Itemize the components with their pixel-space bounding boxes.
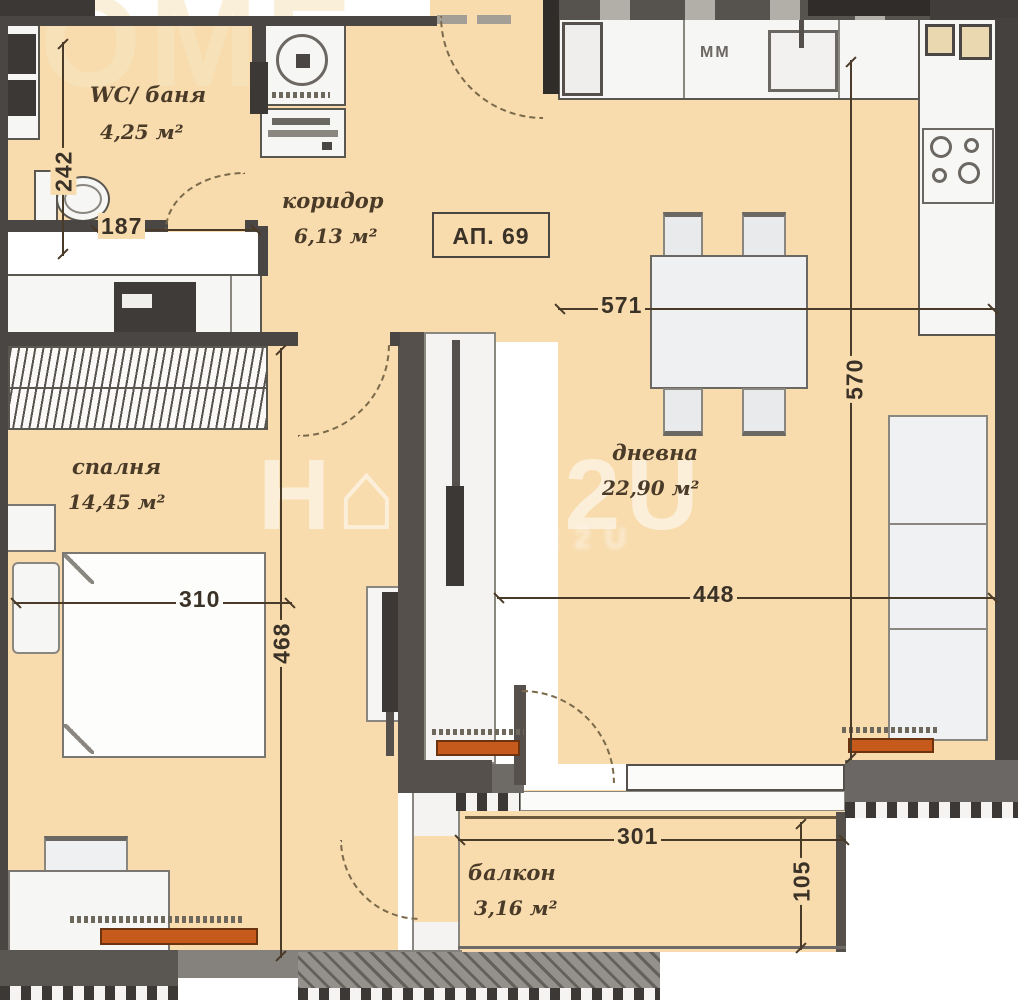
right-insulation-band (845, 760, 1018, 802)
washbasin-drain (322, 142, 332, 150)
washbasin-faucet (272, 118, 330, 125)
nightstand-icon (6, 504, 56, 552)
wall-wc-top (0, 16, 352, 26)
sliding-door-panel (446, 486, 464, 586)
hall-cabinet-slit (122, 294, 152, 308)
room-area-living: 22,90 м² (602, 476, 699, 500)
dimension-label-242: 242 (50, 148, 76, 195)
wall-wc-right-block (250, 62, 268, 114)
wardrobe-divider (10, 387, 266, 389)
bed-fold-mark (64, 554, 94, 584)
washing-machine-drum-icon (6, 34, 36, 74)
dimension-label-187: 187 (98, 213, 145, 239)
dimension-line-448 (497, 597, 995, 599)
room-name-bedroom: спалня (72, 454, 161, 479)
burner-icon (932, 168, 947, 183)
balcony-door-gap (414, 836, 458, 922)
dining-chair-icon (663, 212, 703, 258)
threshold-checker (456, 793, 520, 811)
right-checker (845, 802, 1018, 818)
balcony-window-band (626, 764, 845, 791)
dimension-label-468: 468 (268, 620, 294, 667)
dimension-label-301: 301 (614, 823, 661, 849)
shower-drain-center (296, 54, 310, 68)
bottom-left-checker (0, 986, 178, 1000)
room-area-bedroom: 14,45 м² (68, 490, 165, 514)
sofa-divider (890, 523, 986, 525)
bed-fold-mark (64, 724, 94, 754)
microwave-label: MM (700, 44, 731, 62)
dimension-label-570: 570 (841, 356, 867, 403)
counter-divider (838, 20, 840, 98)
wall-bedroom-top (8, 332, 298, 346)
bottom-checker (298, 988, 660, 1000)
wall-living-bottom (398, 760, 492, 793)
sliding-door-rail (452, 340, 460, 490)
wall-bedroom-top-stub (390, 332, 400, 346)
sofa-icon (888, 415, 988, 741)
entrance-door-leaf (543, 0, 559, 94)
balcony-right-wall (836, 812, 846, 952)
radiator-microtext (432, 729, 524, 735)
radiator-microtext (70, 916, 245, 923)
bottom-insulation-band (298, 952, 660, 990)
dimension-label-105: 105 (788, 858, 814, 905)
burner-icon (958, 162, 980, 184)
balcony-slab-edge (465, 816, 845, 819)
room-name-living: дневна (612, 440, 698, 465)
dining-chair-icon (663, 388, 703, 436)
room-area-wc: 4,25 м² (100, 120, 183, 144)
sofa-divider (890, 628, 986, 630)
shower-microtext (272, 92, 330, 98)
room-name-balcony: балкон (468, 860, 556, 885)
dimension-line-570 (850, 60, 852, 760)
radiator-icon (436, 740, 520, 756)
kitchen-counter (558, 18, 920, 100)
washing-machine-drum-icon (6, 80, 36, 116)
radiator-microtext (842, 727, 937, 733)
radiator-icon (848, 738, 934, 753)
floor-plan: H⌂ME2U HOME2U OME MM (0, 0, 1018, 1000)
dining-chair-icon (742, 388, 786, 436)
balcony-bottom-line (458, 946, 846, 949)
wall-top-band-dark (808, 0, 930, 16)
wall-right (995, 18, 1018, 762)
fridge-icon (562, 22, 603, 96)
partition-wall (398, 332, 424, 764)
dining-chair-icon (742, 212, 786, 258)
double-sink-icon (925, 24, 955, 56)
dimension-label-448: 448 (690, 581, 737, 607)
dimension-line-310 (14, 602, 292, 604)
sliding-door-panel (382, 592, 398, 712)
apartment-number-badge: АП. 69 (432, 212, 550, 258)
balcony-sill (520, 791, 845, 811)
room-area-balcony: 3,16 м² (474, 896, 557, 920)
wall-top-corner (930, 0, 1018, 20)
washbasin-faucet (268, 130, 338, 137)
double-sink-icon (959, 24, 992, 60)
dimension-label-571: 571 (598, 292, 645, 318)
room-name-wc: WC/ баня (90, 82, 206, 107)
wall-left (0, 16, 8, 956)
radiator-icon (100, 928, 258, 945)
sliding-door-rail (386, 712, 394, 756)
faucet-icon (799, 20, 804, 48)
room-name-corridor: коридор (282, 188, 383, 213)
counter-divider (683, 20, 685, 98)
wall-corridor-top (350, 16, 437, 26)
room-area-corridor: 6,13 м² (294, 224, 377, 248)
burner-icon (930, 136, 952, 158)
dimension-label-310: 310 (176, 586, 223, 612)
burner-icon (964, 138, 979, 153)
dining-table-icon (650, 255, 808, 389)
